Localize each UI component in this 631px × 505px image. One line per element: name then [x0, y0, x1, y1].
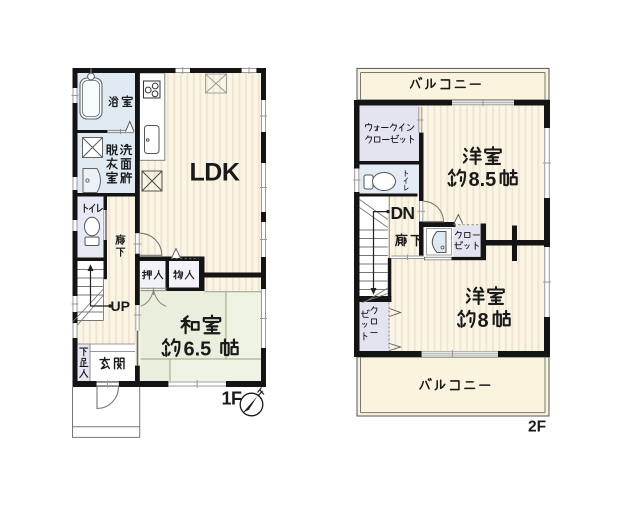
svg-text:8.5: 8.5	[469, 169, 497, 191]
svg-text:LDK: LDK	[190, 159, 240, 187]
svg-text:UP: UP	[111, 298, 130, 314]
svg-text:1F: 1F	[222, 389, 243, 409]
svg-text:2F: 2F	[528, 419, 546, 436]
svg-text:DN: DN	[391, 203, 415, 223]
svg-text:6.5: 6.5	[184, 339, 212, 361]
svg-text:8: 8	[478, 310, 489, 332]
